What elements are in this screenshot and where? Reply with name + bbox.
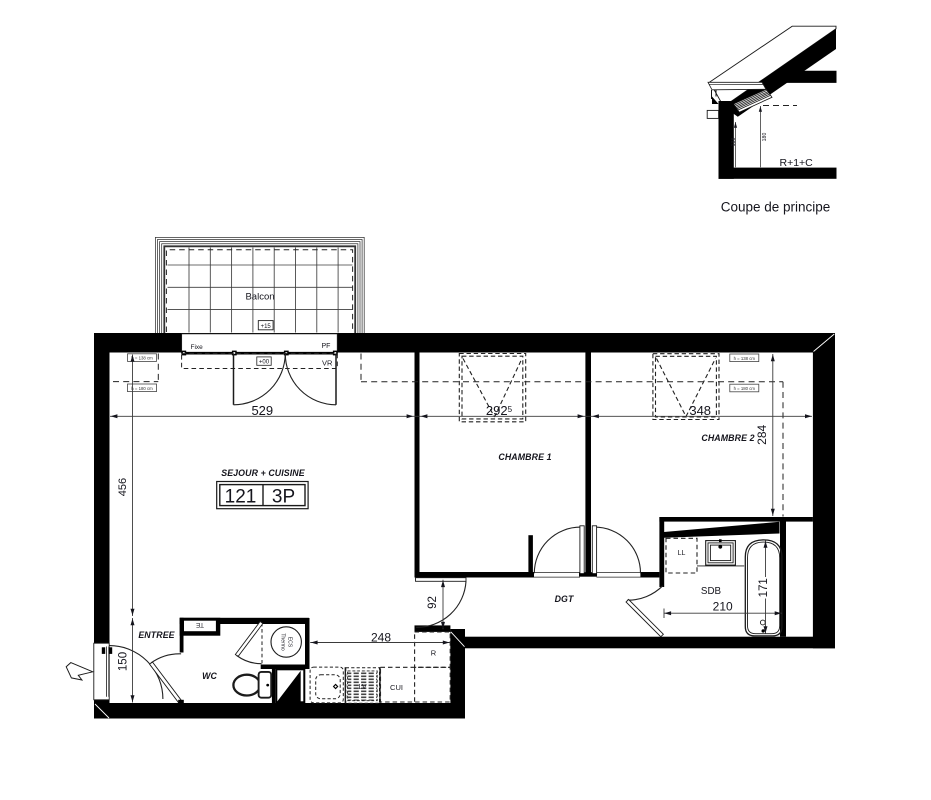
svg-text:210: 210 — [713, 599, 733, 613]
svg-text:180: 180 — [762, 133, 768, 142]
svg-text:CUI: CUI — [390, 683, 403, 692]
svg-text:WC: WC — [202, 671, 217, 681]
svg-text:DGT: DGT — [555, 594, 574, 604]
svg-text:SDB: SDB — [701, 586, 722, 597]
svg-text:Coupe de principe: Coupe de principe — [721, 200, 831, 215]
svg-text:R+1+C: R+1+C — [780, 157, 814, 169]
svg-text:456: 456 — [117, 478, 129, 496]
svg-text:121: 121 — [225, 486, 257, 507]
svg-text:92: 92 — [427, 596, 439, 609]
svg-text:TE: TE — [196, 621, 204, 628]
svg-text:h = 138 cm: h = 138 cm — [131, 356, 153, 361]
svg-text:171: 171 — [758, 578, 770, 597]
svg-text:529: 529 — [251, 403, 273, 418]
svg-text:LV: LV — [358, 684, 366, 691]
svg-text:LL: LL — [678, 550, 686, 557]
svg-text:R: R — [431, 649, 437, 658]
svg-text:SEJOUR + CUISINE: SEJOUR + CUISINE — [221, 468, 306, 478]
svg-text:150: 150 — [117, 652, 129, 671]
svg-text:Thermo: Thermo — [280, 633, 286, 650]
svg-text:PF: PF — [322, 343, 331, 350]
svg-text:CHAMBRE 2: CHAMBRE 2 — [701, 433, 754, 443]
svg-text:Fixe: Fixe — [191, 344, 204, 351]
svg-text:138: 138 — [731, 138, 737, 147]
svg-text:Balcon: Balcon — [245, 292, 274, 303]
svg-text:+00: +00 — [259, 360, 270, 366]
svg-text:h = 180 cm: h = 180 cm — [131, 386, 153, 391]
svg-text:+15: +15 — [261, 324, 272, 330]
svg-text:284: 284 — [755, 424, 769, 444]
svg-text:h = 138 cm: h = 138 cm — [734, 356, 756, 361]
svg-text:348: 348 — [689, 403, 711, 418]
svg-text:h = 180 cm: h = 180 cm — [734, 386, 756, 391]
svg-text:CHAMBRE 1: CHAMBRE 1 — [498, 452, 551, 462]
svg-text:3P: 3P — [272, 486, 295, 507]
svg-text:VR: VR — [322, 359, 333, 368]
svg-text:248: 248 — [371, 630, 391, 644]
svg-text:ENTREE: ENTREE — [138, 630, 175, 640]
svg-text:ECS: ECS — [286, 637, 292, 648]
